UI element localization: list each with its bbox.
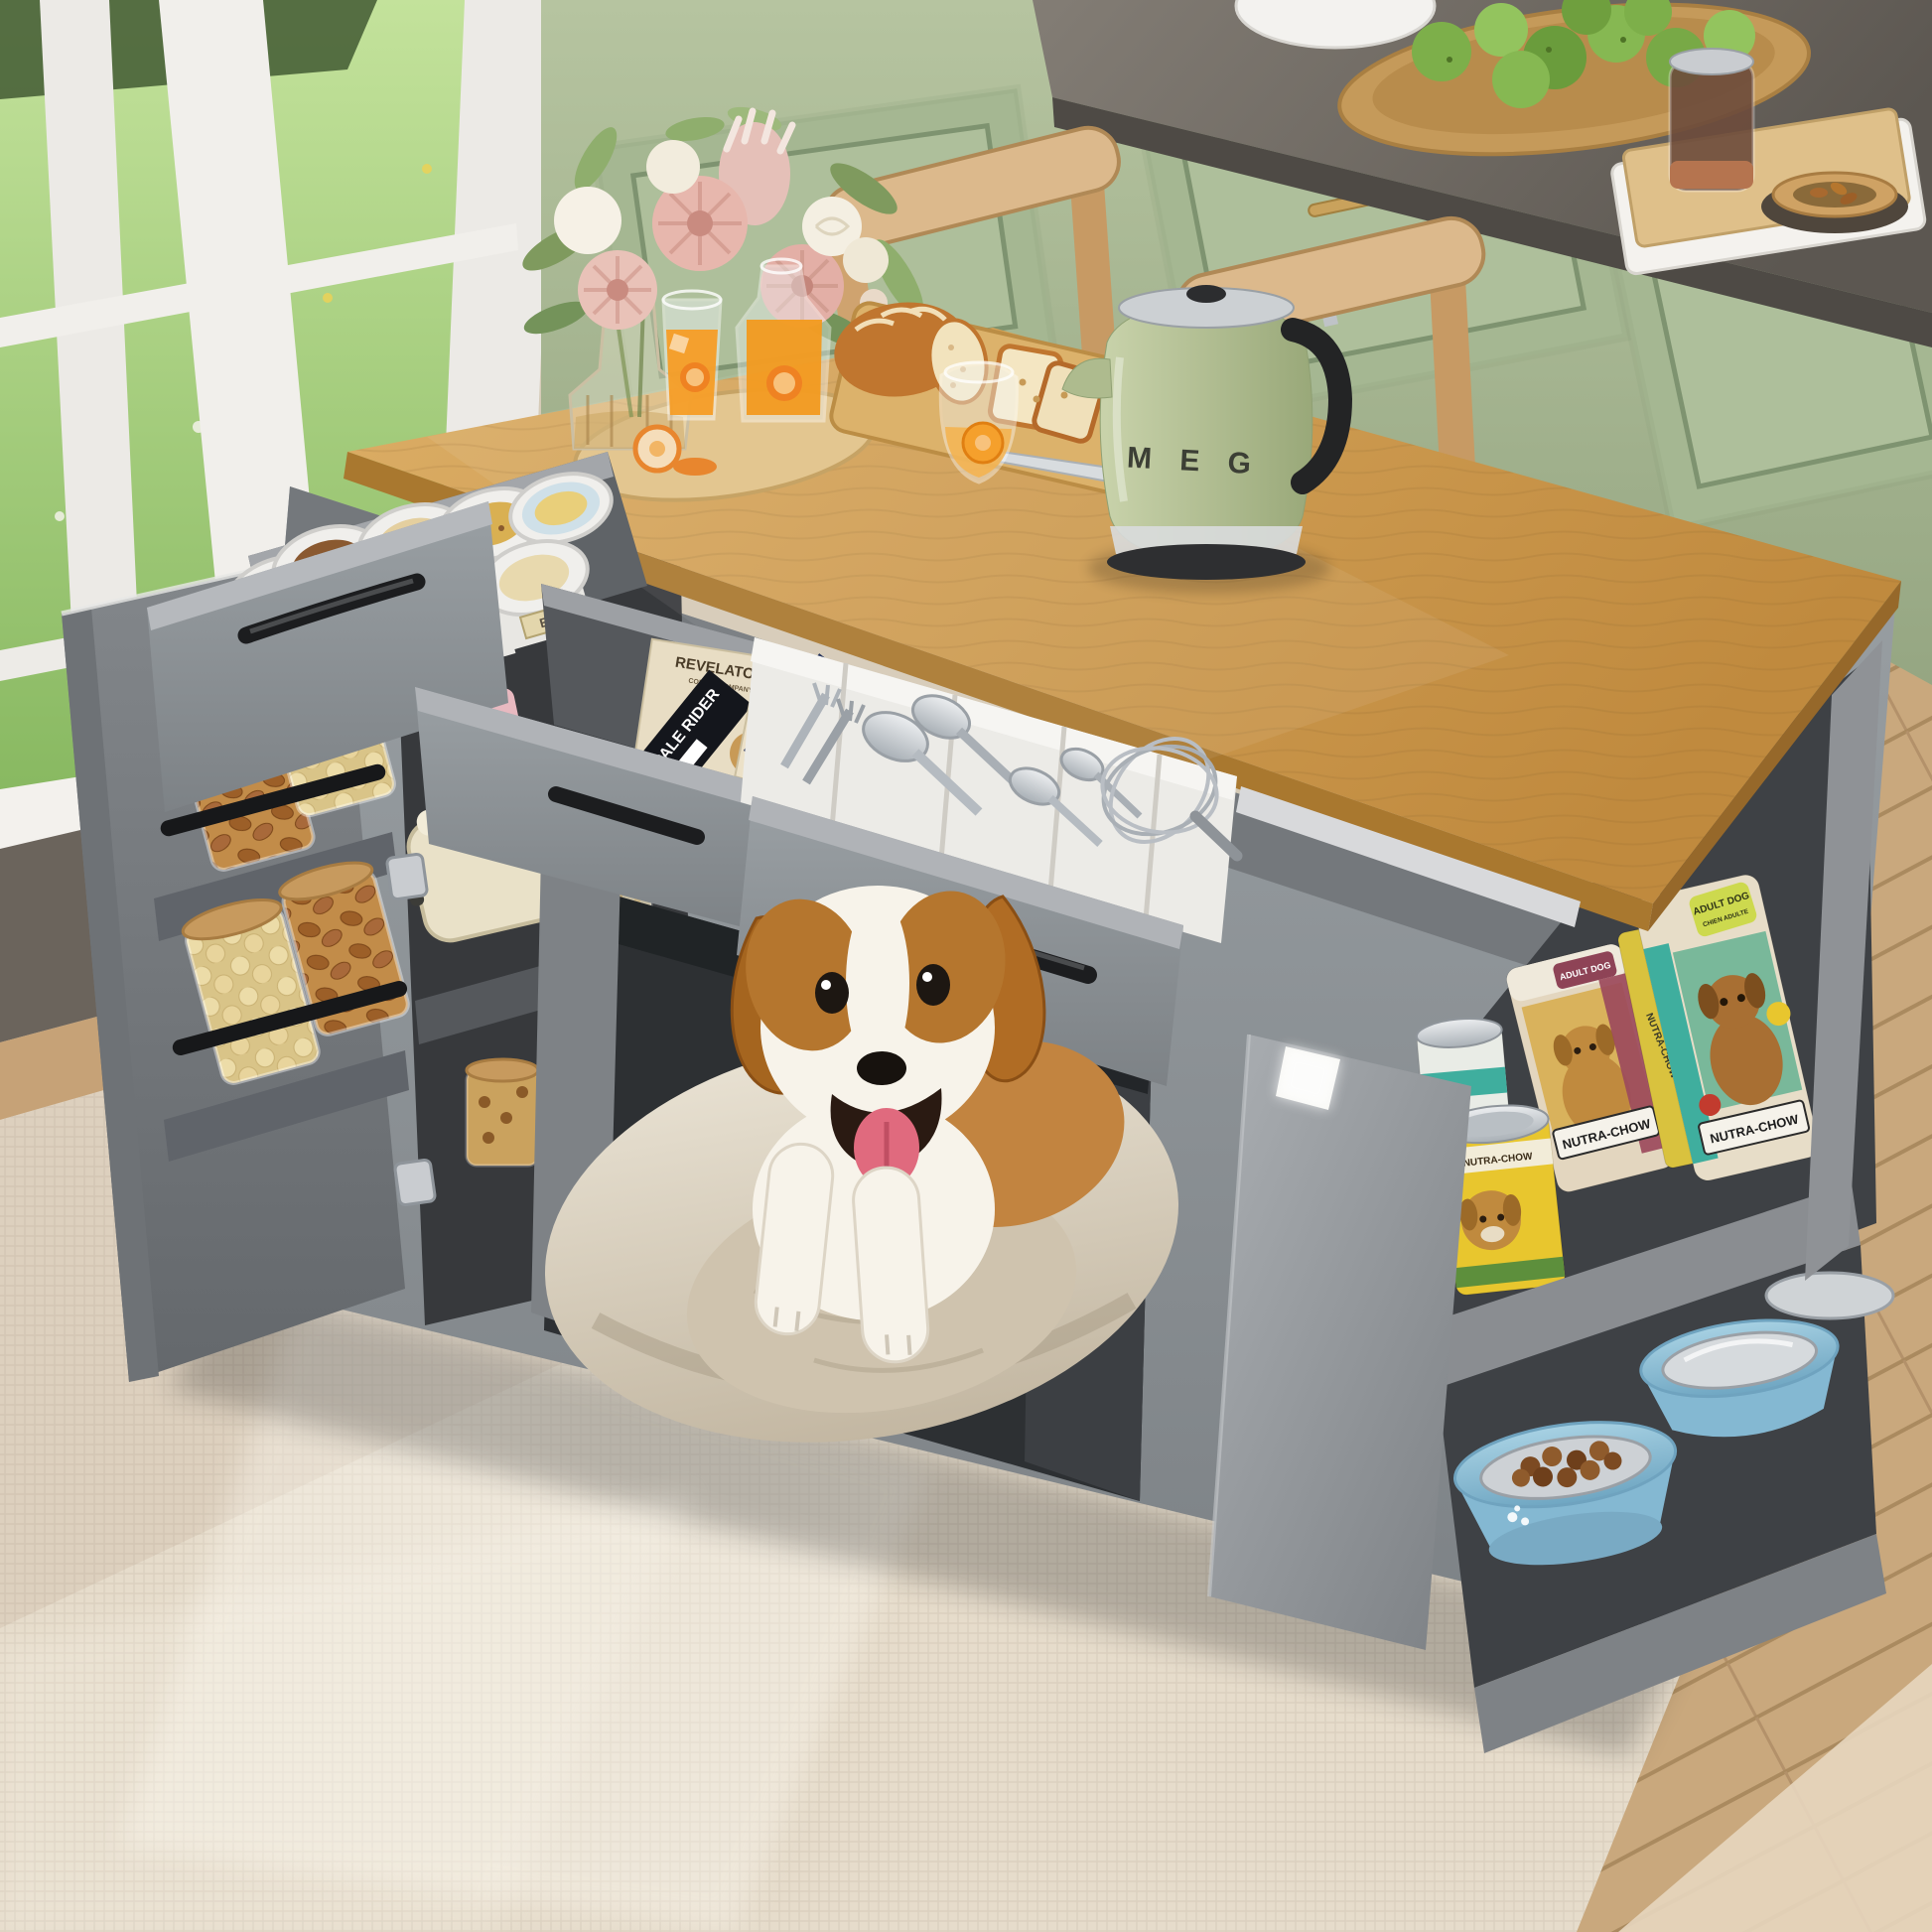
door-hinge [386,854,427,900]
dog-eye [916,964,950,1006]
white-rose [646,140,700,194]
kettle-base [1107,544,1306,580]
glass-canister [1670,49,1753,191]
almond-dish [1761,173,1908,233]
dog-blaze [846,896,909,1070]
kettle-knob [1186,285,1226,303]
dog-paw [851,1166,930,1364]
dog-nose [857,1051,906,1085]
orange-half [673,458,717,476]
juice-glass [663,291,721,419]
door-hinge [394,1160,435,1206]
steel-bowl [1766,1273,1893,1318]
kitchen-island-render: ADULT DOG NUTRA-CHOW NUTRA-CHOW ADULT DO… [0,0,1932,1932]
divider-panel [1209,1035,1471,1650]
kitchen-scene: ADULT DOG NUTRA-CHOW NUTRA-CHOW ADULT DO… [0,0,1932,1932]
kettle-body [1100,302,1312,562]
white-rose [843,237,889,283]
dog-eye [815,972,849,1014]
kettle-letters: M E G [1126,442,1262,482]
white-peony [554,187,621,254]
bean-jar [467,1059,538,1166]
